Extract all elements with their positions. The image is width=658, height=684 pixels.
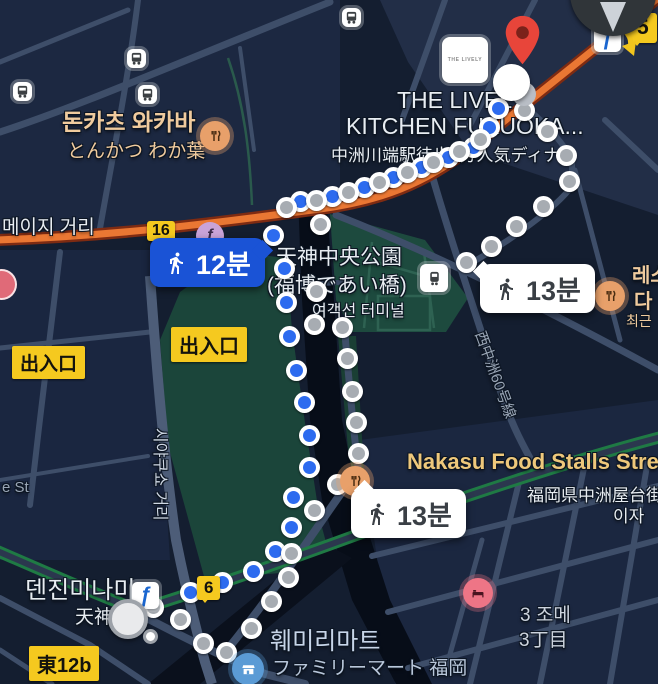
poi-label-familymart-ko[interactable]: 훼미리마트 <box>270 621 380 656</box>
area-label-chome-ko: 3 조메 <box>520 600 571 627</box>
route-dot-gray <box>470 129 491 150</box>
route-dot-blue <box>286 360 307 381</box>
exit-label-1: 出入口 <box>171 327 247 362</box>
route-dot-blue <box>279 326 300 347</box>
poi-label-nakasu-sub2: 이자 <box>613 502 644 527</box>
route-dot-gray <box>306 190 327 211</box>
route-dot-blue <box>243 561 264 582</box>
walk-time-text: 13분 <box>397 494 452 533</box>
origin-sub-dot <box>143 629 158 644</box>
route-dot-gray <box>397 162 418 183</box>
restaurant-icon[interactable] <box>200 121 230 151</box>
route-dot-gray <box>304 500 325 521</box>
route-dot-gray <box>337 348 358 369</box>
walk-time-text: 13분 <box>526 269 581 308</box>
route-dot-gray <box>241 618 262 639</box>
route-dot-gray <box>533 196 554 217</box>
route-dot-gray <box>537 121 558 142</box>
walking-person-icon <box>494 277 518 301</box>
bus-icon[interactable] <box>138 85 157 104</box>
route-dot-gray <box>342 381 363 402</box>
poi-label-ferry-terminal[interactable]: 여객선 터미널 <box>312 297 405 321</box>
route-dot-gray <box>332 317 353 338</box>
route-dot-gray <box>216 642 237 663</box>
compass-needle <box>600 2 626 32</box>
route-dot-gray <box>304 314 325 335</box>
route-dot-gray <box>481 236 502 257</box>
route-dot-blue <box>299 457 320 478</box>
walk-time-badge-alt-1[interactable]: 13분 <box>480 264 595 313</box>
walking-person-icon <box>164 251 188 275</box>
route-dot-gray <box>449 141 470 162</box>
train-station-icon[interactable] <box>420 264 448 292</box>
road-label-meiji: 메이지 거리 <box>2 212 95 239</box>
poi-label-tonkatsu-ja[interactable]: とんかつ わか葉 <box>67 136 205 163</box>
exit-label-higashi12b: 東12b <box>29 646 99 681</box>
poi-label-resto-1[interactable]: 레스 <box>632 259 658 288</box>
route-dot-blue <box>488 98 509 119</box>
route-dot-gray <box>346 412 367 433</box>
route-dot-gray <box>556 145 577 166</box>
poi-label-nakasu[interactable]: Nakasu Food Stalls Stre <box>407 449 658 475</box>
route-dot-gray <box>306 281 327 302</box>
lively-logo-card[interactable]: THE LIVELY <box>442 37 488 83</box>
route-dot-gray <box>559 171 580 192</box>
walk-time-badge-selected[interactable]: 12분 <box>150 238 265 287</box>
area-label-chome-ja: 3丁目 <box>519 625 568 652</box>
route-dot-gray <box>338 182 359 203</box>
route-dot-gray <box>278 567 299 588</box>
route-dot-blue <box>294 392 315 413</box>
poi-label-resto-2[interactable]: 다 <box>634 285 652 314</box>
route-dot-blue <box>299 425 320 446</box>
origin-station-dot[interactable] <box>108 599 148 639</box>
walking-person-icon <box>365 502 389 526</box>
route-dot-gray <box>369 172 390 193</box>
road-label-est: e St <box>2 479 29 496</box>
red-map-pin[interactable] <box>500 14 545 68</box>
route-dot-gray <box>281 543 302 564</box>
hotel-bed-icon[interactable] <box>463 578 493 608</box>
route-shield-6: 6 <box>197 576 220 600</box>
route-dot-gray <box>310 214 331 235</box>
walk-time-text: 12분 <box>196 243 251 282</box>
route-dot-gray <box>423 152 444 173</box>
convenience-store-icon[interactable] <box>232 653 264 684</box>
route-dot-gray <box>261 591 282 612</box>
route-dot-blue <box>283 487 304 508</box>
road-label-shiyakusho: 시야쿠쇼 거리 <box>150 428 174 521</box>
bus-icon[interactable] <box>13 82 32 101</box>
route-dot-gray <box>348 443 369 464</box>
lively-logo-text: THE LIVELY <box>448 57 482 63</box>
route-dot-gray <box>276 197 297 218</box>
route-dot-gray <box>506 216 527 237</box>
route-dot-gray <box>170 609 191 630</box>
bus-icon[interactable] <box>342 8 361 27</box>
walk-time-badge-alt-2[interactable]: 13분 <box>351 489 466 538</box>
route-dot-blue <box>274 258 295 279</box>
poi-label-resto-3[interactable]: 최근 <box>626 311 652 331</box>
bus-icon[interactable] <box>127 49 146 68</box>
poi-label-familymart-ja[interactable]: ファミリーマート 福岡 <box>272 653 467 680</box>
exit-label-2: 出入口 <box>12 346 85 379</box>
route-dot-blue <box>281 517 302 538</box>
poi-label-tonkatsu-ko[interactable]: 돈카츠 와카바 <box>62 103 195 137</box>
poi-label-park-name[interactable]: 天神中央公園 <box>276 241 402 271</box>
destination-dot[interactable] <box>493 64 530 101</box>
route-dot-gray <box>193 633 214 654</box>
route-dot-blue <box>276 292 297 313</box>
restaurant-icon[interactable] <box>595 281 625 311</box>
map-canvas[interactable]: 메이지 거리 돈카츠 와카바 とんかつ わか葉 天神中央公園 (福博であい橋) … <box>0 0 658 684</box>
